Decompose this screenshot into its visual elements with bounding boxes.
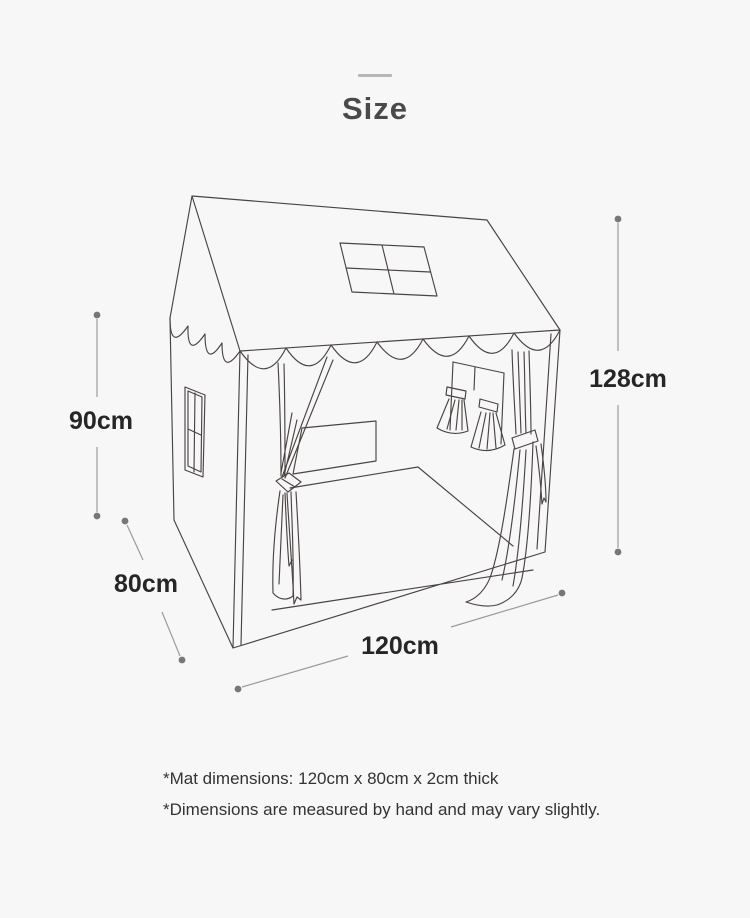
valance-scallops xyxy=(170,318,560,369)
right-curtain-sash xyxy=(536,444,546,504)
right-curtain xyxy=(466,350,546,606)
dim-height-label: 128cm xyxy=(589,365,667,393)
side-window-mullions xyxy=(188,393,201,472)
footnote-mat-dimensions: *Mat dimensions: 120cm x 80cm x 2cm thic… xyxy=(163,763,703,794)
roof-skylight-window xyxy=(340,243,437,296)
dim-side-dot-top xyxy=(94,312,101,319)
dim-width-dot-right xyxy=(559,590,566,597)
skylight-mullions xyxy=(346,245,430,294)
dim-height: 128cm xyxy=(589,216,667,556)
dimension-annotations: 128cm 90cm 80cm 120cm xyxy=(69,216,667,693)
right-bundle-fan xyxy=(471,412,505,451)
floor-edges xyxy=(290,467,513,546)
dim-width-line-right xyxy=(451,595,558,627)
dim-height-dot-bottom xyxy=(615,549,622,556)
right-bundle-tie-band xyxy=(479,399,498,412)
left-curtain-knot xyxy=(276,473,301,492)
front-frame xyxy=(233,330,560,648)
dim-width: 120cm xyxy=(235,590,566,693)
dim-width-line-left xyxy=(242,656,348,687)
size-spec-page: Size xyxy=(0,0,750,918)
dim-side-height: 90cm xyxy=(69,312,133,520)
dim-width-label: 120cm xyxy=(361,632,439,660)
dim-width-dot-left xyxy=(235,686,242,693)
left-bundle-fan xyxy=(437,399,468,433)
side-scallops xyxy=(170,318,240,362)
dim-side-label: 90cm xyxy=(69,407,133,435)
dim-side-dot-bottom xyxy=(94,513,101,520)
roof-outline xyxy=(170,196,560,351)
dim-depth-line-top xyxy=(127,525,143,560)
footnote-measurement-disclaimer: *Dimensions are measured by hand and may… xyxy=(163,794,703,825)
left-bundle-tie-band xyxy=(446,387,466,399)
roof xyxy=(170,196,560,351)
left-curtain xyxy=(273,357,333,604)
dim-height-dot-top xyxy=(615,216,622,223)
dim-depth: 80cm xyxy=(114,518,185,664)
dim-depth-dot-top xyxy=(122,518,129,525)
tent-line-drawing xyxy=(170,196,560,648)
dim-depth-line-bottom xyxy=(162,612,180,656)
interior-curtained-window xyxy=(437,362,505,451)
side-wall-edges xyxy=(170,318,248,648)
footnotes: *Mat dimensions: 120cm x 80cm x 2cm thic… xyxy=(163,763,703,825)
side-window xyxy=(185,387,205,477)
front-frame-edges xyxy=(233,330,560,648)
interior-floor xyxy=(290,467,513,546)
left-curtain-drape xyxy=(278,357,333,478)
dim-depth-label: 80cm xyxy=(114,570,178,598)
side-wall xyxy=(170,318,248,648)
dim-depth-dot-bottom xyxy=(179,657,186,664)
right-curtain-lower xyxy=(466,442,533,606)
right-curtain-upper xyxy=(512,350,531,434)
